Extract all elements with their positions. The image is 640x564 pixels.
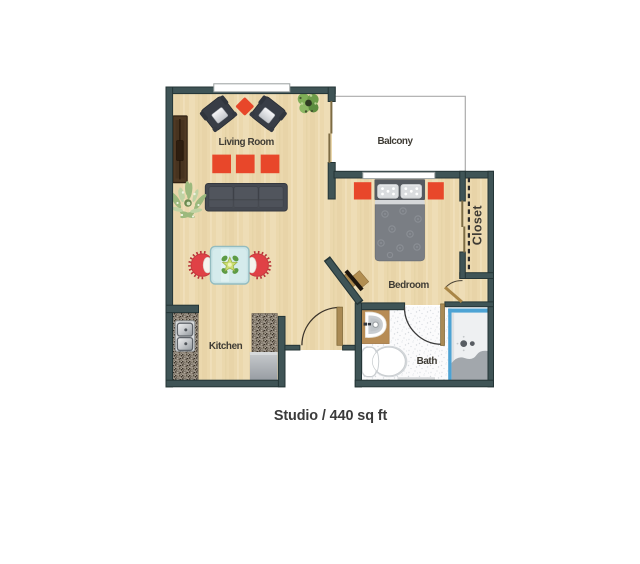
svg-text:Studio / 440 sq ft: Studio / 440 sq ft <box>274 408 388 424</box>
svg-text:Living Room: Living Room <box>218 137 274 148</box>
svg-text:Balcony: Balcony <box>378 136 414 147</box>
svg-text:Kitchen: Kitchen <box>209 341 243 352</box>
svg-text:Closet: Closet <box>471 205 485 246</box>
svg-text:Bedroom: Bedroom <box>388 280 429 291</box>
svg-text:Bath: Bath <box>417 356 438 367</box>
